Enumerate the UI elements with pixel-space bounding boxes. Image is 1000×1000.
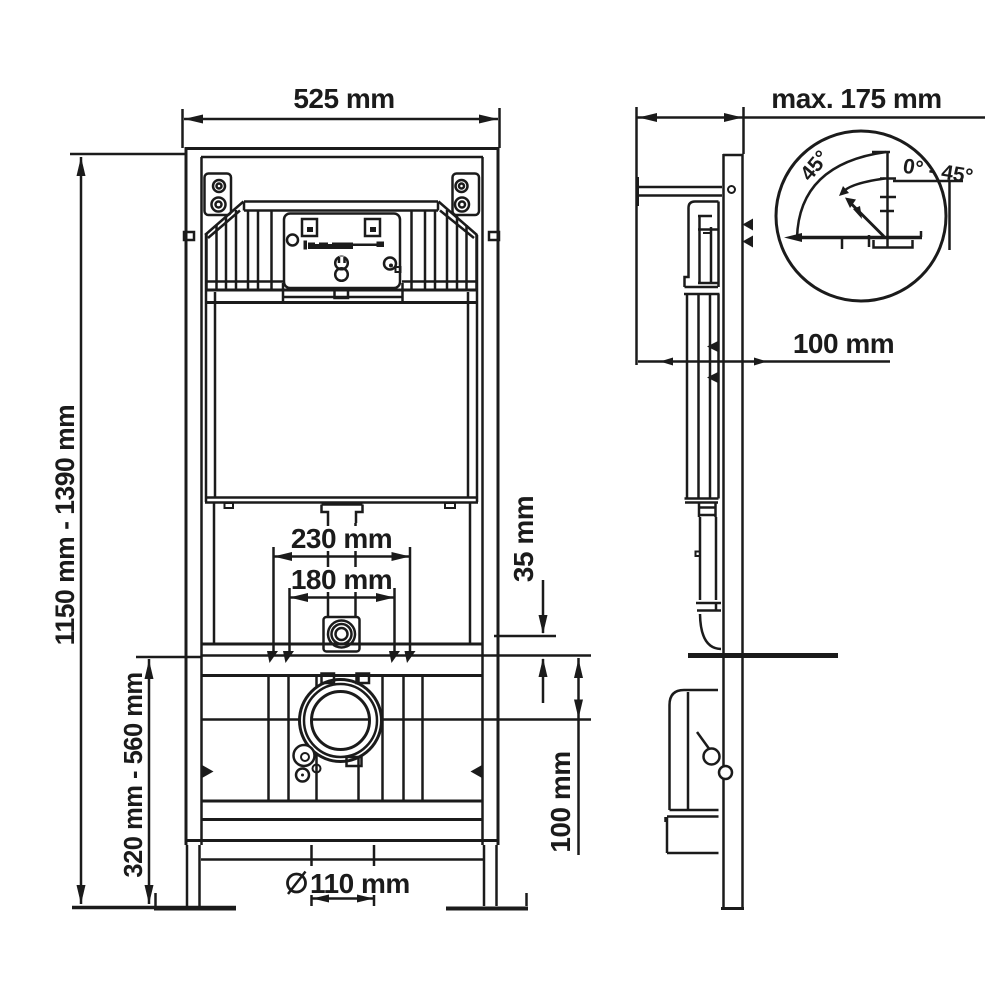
- svg-text:max. 175 mm: max. 175 mm: [771, 83, 941, 114]
- svg-text:100 mm: 100 mm: [545, 751, 576, 852]
- svg-text:110 mm: 110 mm: [310, 868, 410, 899]
- svg-text:180 mm: 180 mm: [291, 564, 392, 595]
- svg-text:100 mm: 100 mm: [793, 328, 894, 359]
- svg-text:230 mm: 230 mm: [291, 523, 392, 554]
- svg-text:35 mm: 35 mm: [508, 496, 539, 582]
- svg-text:1150 mm - 1390 mm: 1150 mm - 1390 mm: [50, 405, 80, 645]
- svg-text:525 mm: 525 mm: [293, 83, 394, 114]
- svg-text:320 mm - 560 mm: 320 mm - 560 mm: [120, 672, 148, 877]
